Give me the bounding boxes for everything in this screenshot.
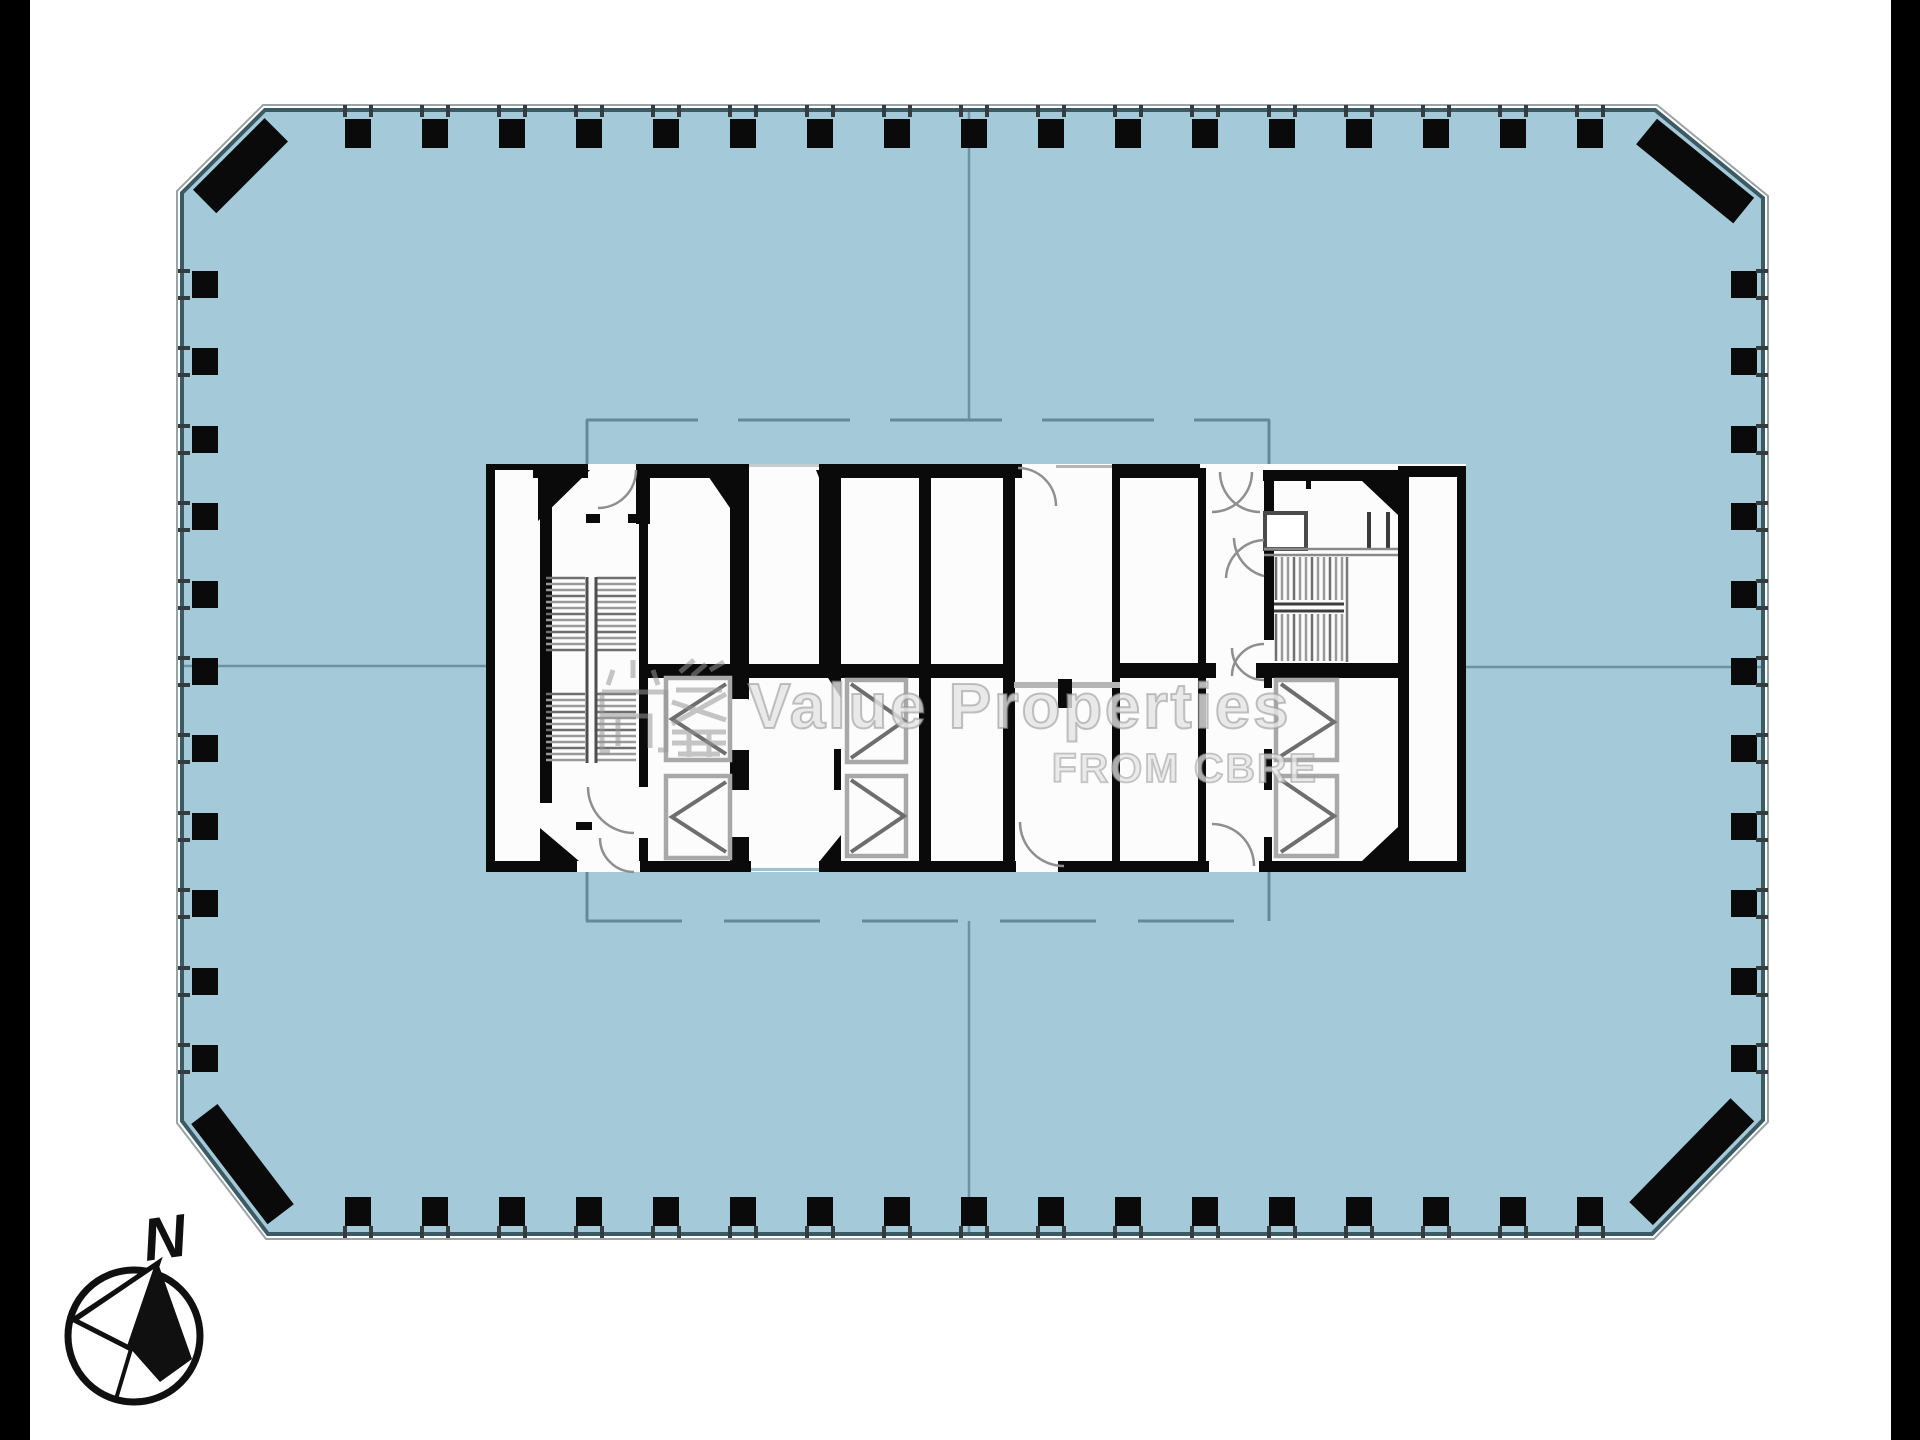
svg-text:Value Properties: Value Properties [748, 670, 1291, 742]
svg-text:FROM CBRE: FROM CBRE [1052, 745, 1318, 791]
